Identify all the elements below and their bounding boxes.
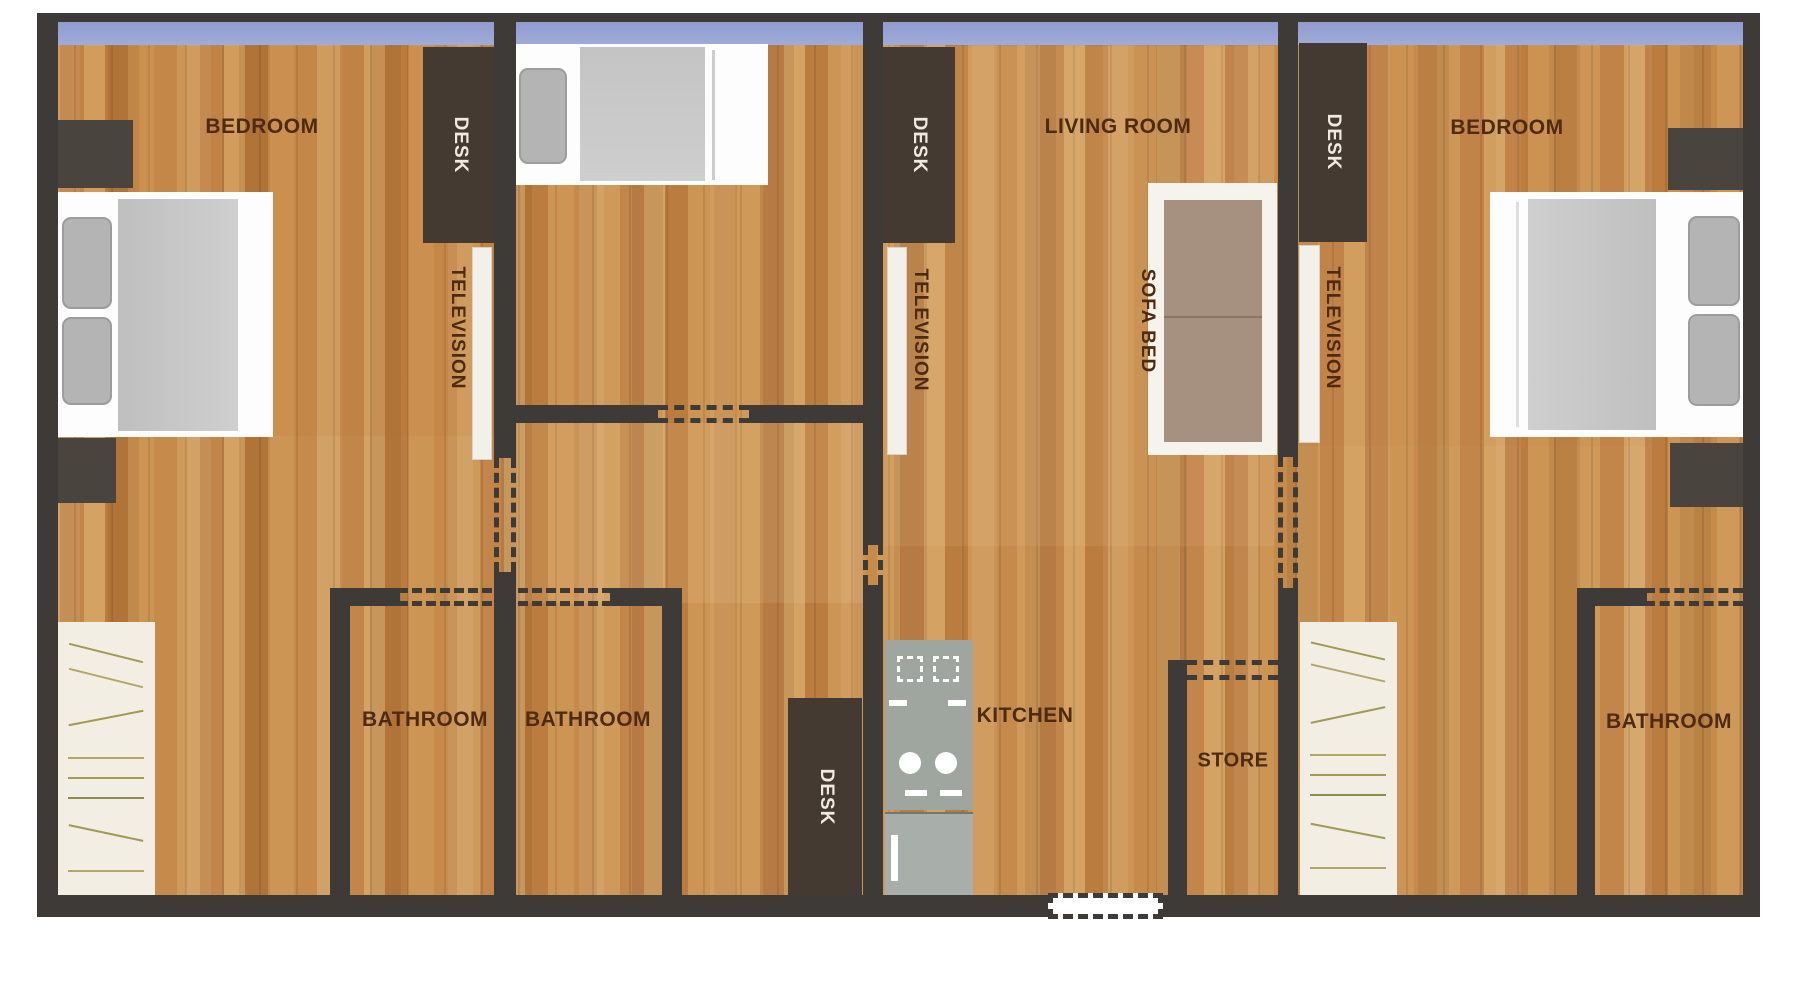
sofa-cushions [1164, 200, 1262, 442]
label-desk-3: DESK [1322, 114, 1344, 171]
sofa-seam [1164, 316, 1262, 318]
wall-bathroom2-right [662, 600, 682, 895]
wall-divider-3-upper [1278, 13, 1298, 457]
wall-outer-right [1743, 13, 1760, 917]
wall-store-left [1168, 660, 1187, 895]
stove-burner-icon [933, 656, 959, 682]
wall-divider-2-upper [863, 13, 883, 545]
label-store: STORE [1197, 750, 1268, 773]
door-store [1187, 660, 1278, 680]
tv-left [472, 247, 492, 460]
door-bedroom-middle [658, 405, 749, 423]
bed-blanket [1528, 199, 1656, 430]
door-bathroom-2 [518, 588, 612, 606]
label-desk-2: DESK [908, 117, 930, 174]
stove-burner-icon [899, 752, 921, 774]
bed-pillow [62, 217, 112, 309]
bed-blanket [580, 47, 705, 181]
nightstand [1668, 128, 1743, 190]
wall-outer-left [37, 13, 58, 917]
label-bedroom-right: BEDROOM [1450, 116, 1563, 140]
stove-tick [948, 700, 966, 706]
wall-bathroom1-left [330, 588, 350, 895]
wall-divider-1-lower [494, 572, 516, 895]
stove-tick [889, 700, 907, 706]
wall-outer-bottom [37, 895, 1048, 917]
bed-pillow [519, 68, 567, 164]
door-bathroom-3 [1645, 588, 1743, 606]
window-band [58, 21, 1743, 45]
label-bathroom-2: BATHROOM [525, 708, 651, 732]
label-sofa-bed: SOFA BED [1136, 269, 1158, 373]
label-television-3: TELEVISION [1321, 267, 1343, 390]
stove-burner-icon [935, 752, 957, 774]
wall-bathroom3-top [1577, 588, 1647, 606]
tv-living [887, 247, 907, 455]
wall-bathroom3-left [1577, 588, 1595, 895]
stove-tick [905, 790, 927, 796]
wall-bathroom1-top [330, 588, 400, 606]
label-desk-1: DESK [449, 117, 471, 174]
wardrobe-left [58, 622, 155, 895]
wall-outer-top [37, 13, 1760, 22]
label-television-2: TELEVISION [909, 269, 931, 392]
bed-sheet-fold [1516, 202, 1519, 427]
fridge-handle [891, 835, 898, 881]
door-kitchen [863, 545, 883, 585]
door-bedroom-left [494, 458, 516, 572]
bed-blanket [118, 199, 238, 431]
label-television-1: TELEVISION [446, 267, 468, 390]
stove-tick [940, 790, 962, 796]
bed-pillow [1688, 314, 1740, 406]
tv-right [1299, 245, 1320, 443]
wardrobe-right [1300, 622, 1397, 895]
label-bedroom-left: BEDROOM [205, 115, 318, 139]
wall-divider-1-upper [494, 13, 516, 458]
label-living-room: LIVING ROOM [1045, 115, 1192, 139]
label-bathroom-1: BATHROOM [362, 708, 488, 732]
label-desk-4: DESK [815, 769, 837, 826]
bed-pillow [1688, 216, 1740, 306]
wall-divider-3-lower [1278, 588, 1298, 895]
door-entry [1048, 893, 1163, 919]
bed-pillow [62, 317, 112, 405]
door-living-to-right-unit [1278, 457, 1298, 588]
label-bathroom-3: BATHROOM [1606, 710, 1732, 734]
wall-bedroom-middle-bottom [749, 405, 863, 423]
wall-outer-bottom [1163, 895, 1760, 917]
bed-sheet-fold [712, 50, 715, 180]
floor-plan: BEDROOM LIVING ROOM BEDROOM KITCHEN BATH… [0, 0, 1800, 1000]
fridge [885, 812, 973, 895]
nightstand [56, 438, 116, 503]
stove-burner-icon [897, 656, 923, 682]
label-kitchen: KITCHEN [977, 704, 1074, 728]
wall-bedroom-middle-bottom [494, 405, 658, 423]
nightstand [1670, 443, 1743, 507]
wall-divider-2-lower [863, 585, 883, 895]
door-bathroom-1 [398, 588, 492, 606]
nightstand [58, 120, 133, 188]
